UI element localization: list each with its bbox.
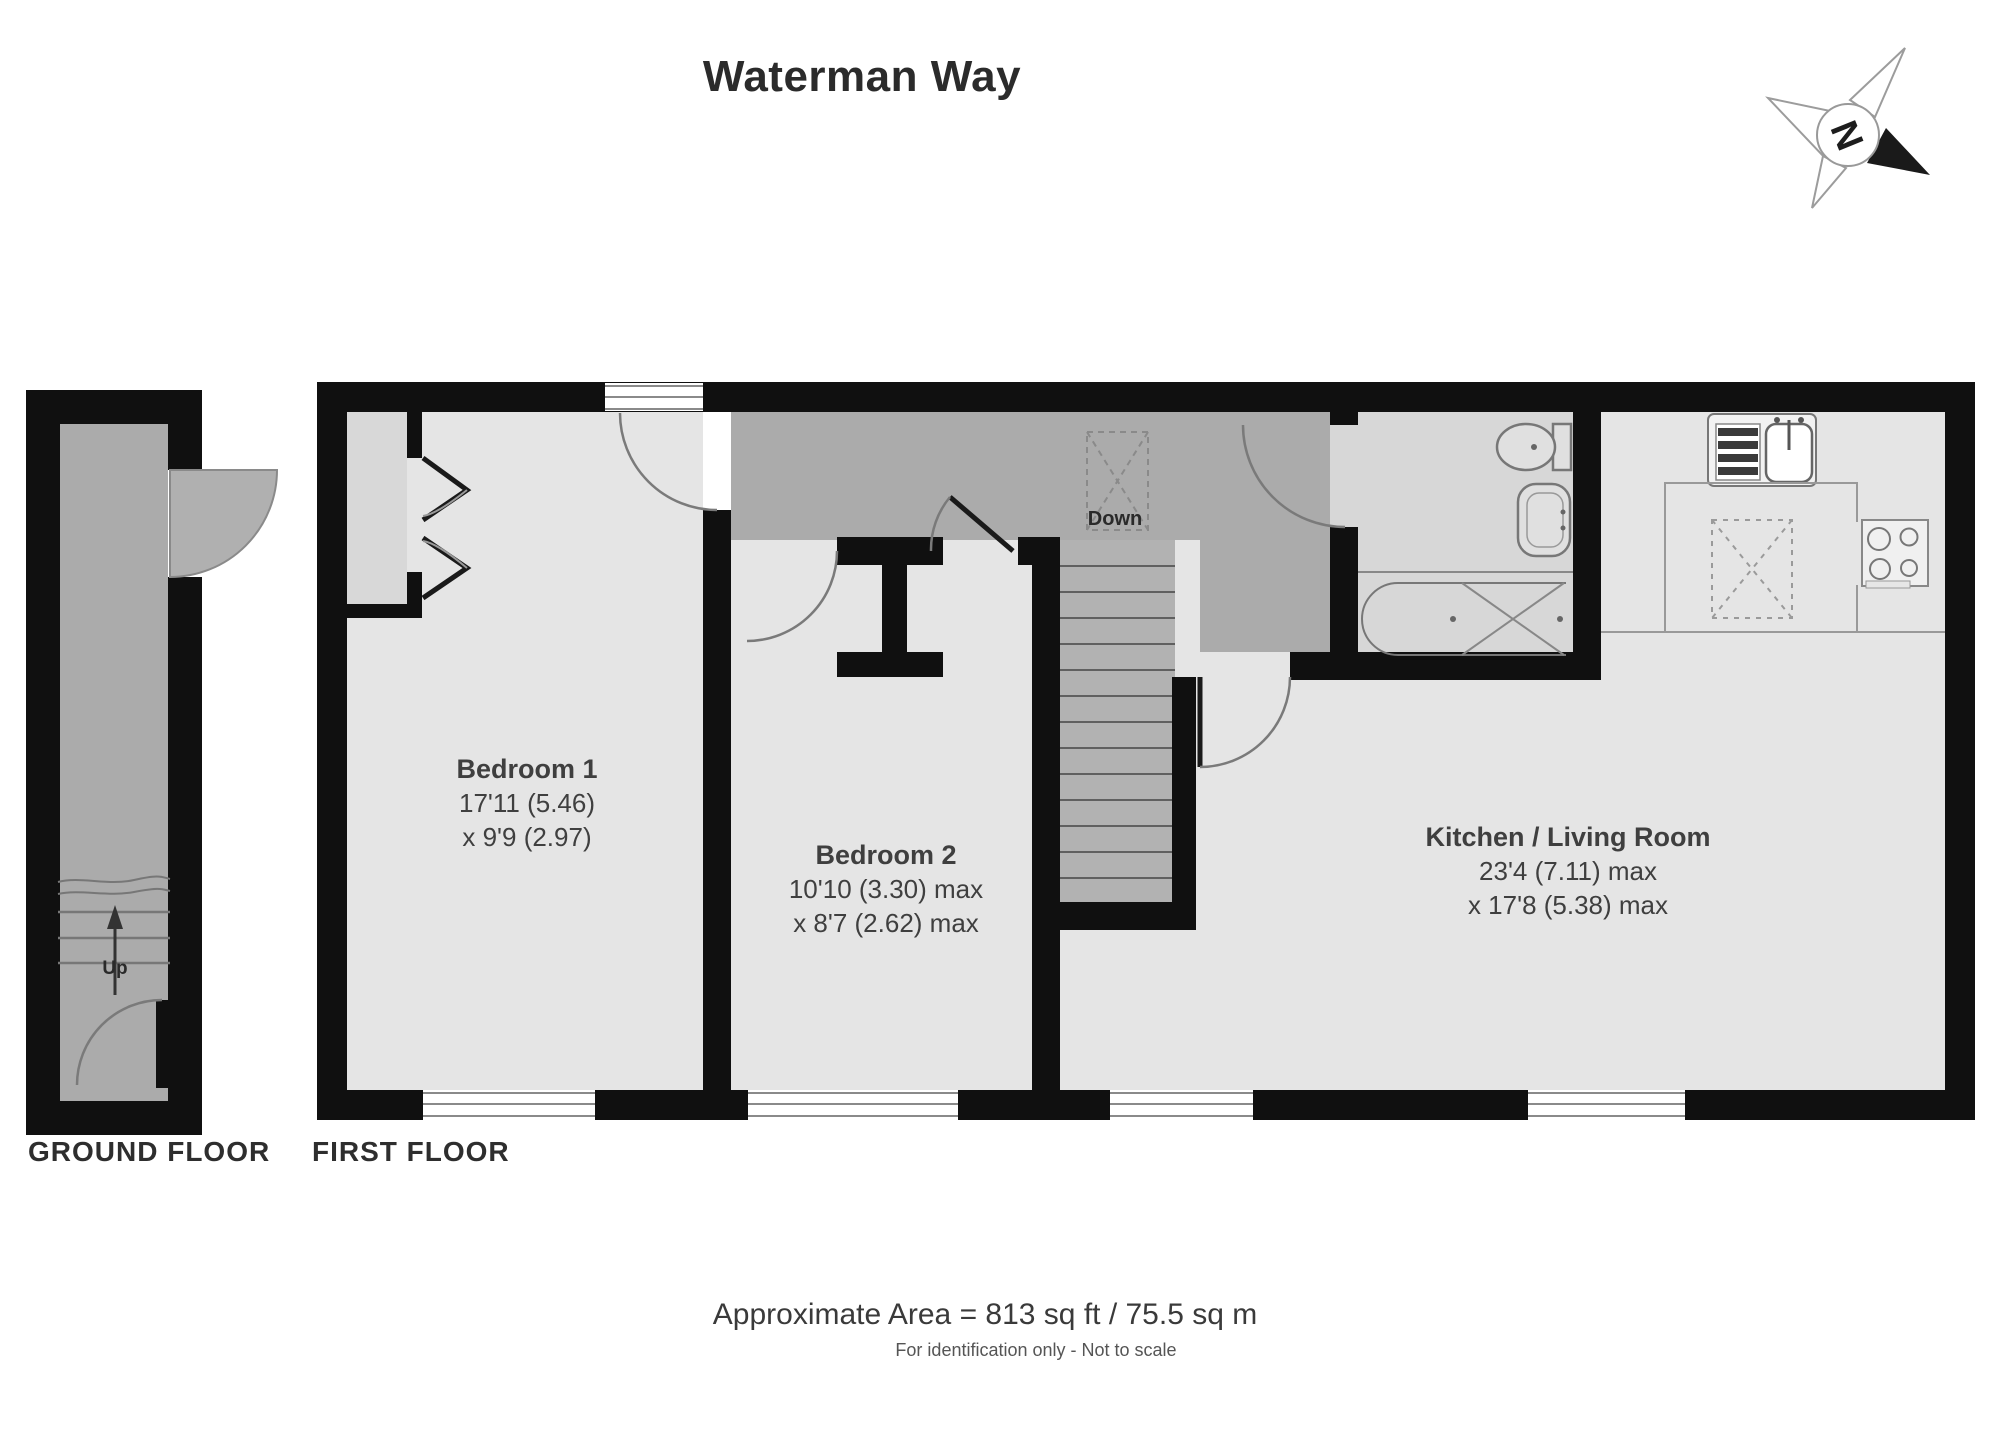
disclaimer-text: For identification only - Not to scale <box>895 1340 1176 1361</box>
toilet-fixture <box>1497 424 1571 470</box>
window-bedroom1 <box>423 1090 595 1120</box>
ground-entry-door-swing <box>170 470 277 577</box>
kitchen-living-dim2: x 17'8 (5.38) max <box>1425 888 1710 922</box>
ground-front-door-stub <box>156 1000 174 1088</box>
compass-rose: N <box>1768 48 1930 208</box>
ground-floor-plan <box>26 390 277 1135</box>
first-floor-label: FIRST FLOOR <box>312 1136 510 1168</box>
bedroom2-dim1: 10'10 (3.30) max <box>789 872 983 906</box>
kitchen-living-dim1: 23'4 (7.11) max <box>1425 854 1710 888</box>
window-bedroom2 <box>748 1090 958 1120</box>
kitchen-living-label: Kitchen / Living Room 23'4 (7.11) max x … <box>1425 820 1710 922</box>
basin-fixture <box>1518 484 1570 556</box>
window-living-1 <box>1110 1090 1253 1120</box>
floorplan-page: N Waterman Way Bedroom 1 17'11 (5.46) x … <box>0 0 2000 1452</box>
stairs-up-label: Up <box>102 958 127 980</box>
stairs-down-label: Down <box>1088 508 1142 531</box>
bathroom-door-opening <box>1330 425 1358 527</box>
ground-floor-label: GROUND FLOOR <box>28 1136 270 1168</box>
window-bedroom1-top <box>605 383 703 411</box>
kitchen-living-name: Kitchen / Living Room <box>1425 820 1710 854</box>
first-floor-plan <box>317 382 1975 1120</box>
window-living-2 <box>1528 1090 1685 1120</box>
bedroom2-dim2: x 8'7 (2.62) max <box>789 906 983 940</box>
page-title: Waterman Way <box>462 52 1262 102</box>
approximate-area-text: Approximate Area = 813 sq ft / 75.5 sq m <box>713 1298 1257 1332</box>
sink-unit <box>1708 414 1816 486</box>
bedroom1-door-opening <box>703 412 731 510</box>
bedroom2-name: Bedroom 2 <box>789 838 983 872</box>
bedroom1-label: Bedroom 1 17'11 (5.46) x 9'9 (2.97) <box>456 752 597 854</box>
floorplan-drawing: N <box>0 0 2000 1452</box>
bedroom1-closet-floor <box>347 412 407 608</box>
bedroom1-dim1: 17'11 (5.46) <box>456 786 597 820</box>
bedroom1-dim2: x 9'9 (2.97) <box>456 820 597 854</box>
bedroom2-label: Bedroom 2 10'10 (3.30) max x 8'7 (2.62) … <box>789 838 983 940</box>
hob-fixture <box>1862 520 1928 588</box>
bedroom1-name: Bedroom 1 <box>456 752 597 786</box>
